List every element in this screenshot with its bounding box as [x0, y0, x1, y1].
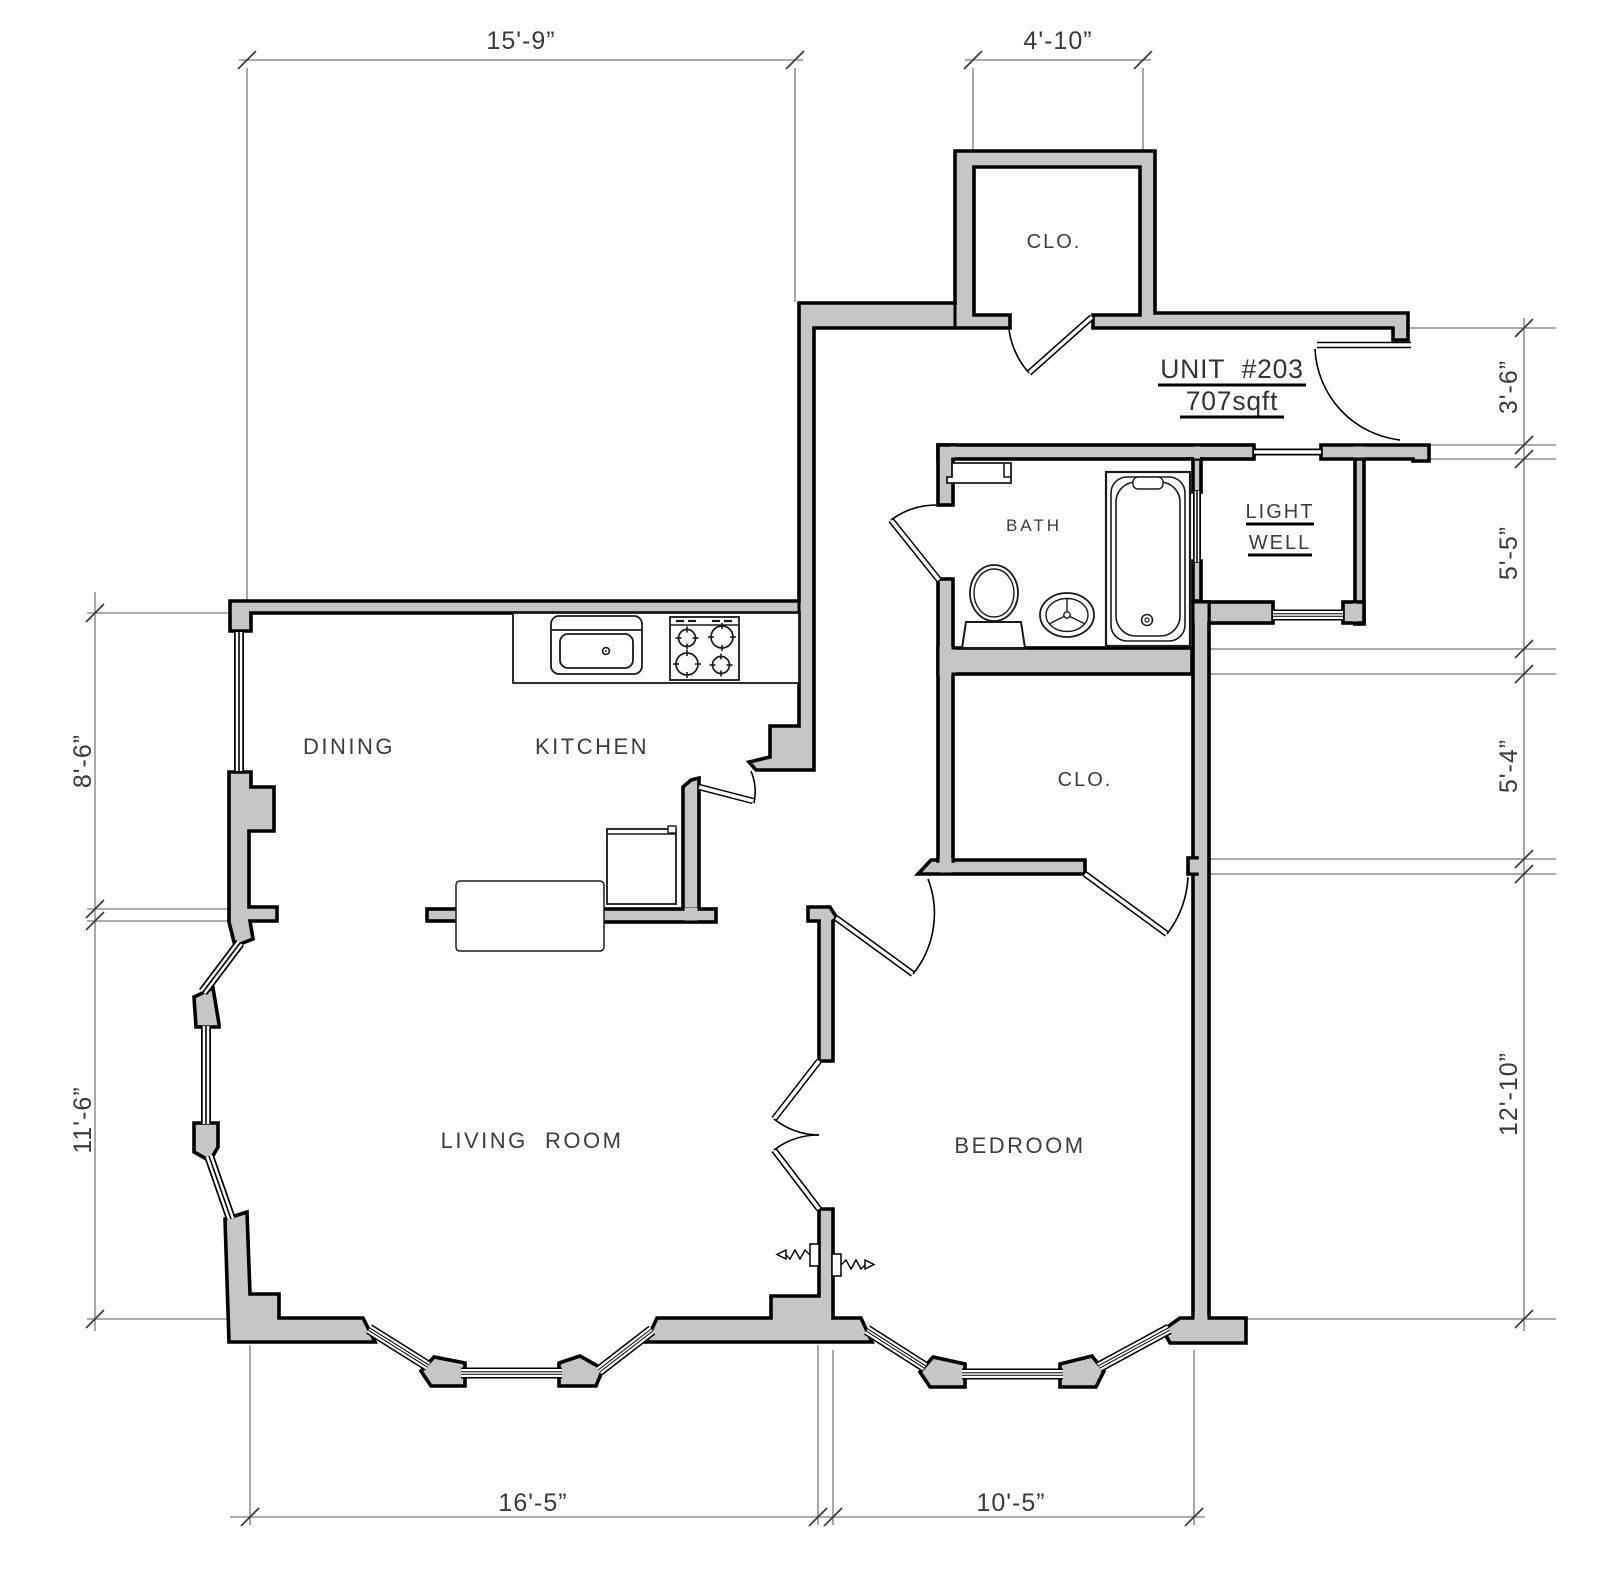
svg-text:8'-6”: 8'-6”: [69, 734, 97, 788]
svg-text:3'-6”: 3'-6”: [1495, 360, 1523, 414]
svg-text:12'-10”: 12'-10”: [1495, 1052, 1523, 1136]
svg-text:LIVING ROOM: LIVING ROOM: [441, 1128, 624, 1153]
svg-text:CLO.: CLO.: [1027, 231, 1082, 253]
svg-text:16'-5”: 16'-5”: [498, 1489, 567, 1517]
svg-text:15'-9”: 15'-9”: [486, 27, 555, 55]
svg-text:11'-6”: 11'-6”: [69, 1086, 97, 1153]
svg-text:4'-10”: 4'-10”: [1023, 27, 1092, 55]
svg-text:BATH: BATH: [1006, 516, 1062, 535]
svg-text:WELL: WELL: [1249, 532, 1311, 554]
svg-text:707sqft: 707sqft: [1186, 386, 1279, 416]
svg-text:KITCHEN: KITCHEN: [535, 734, 649, 759]
svg-text:DINING: DINING: [303, 734, 395, 759]
svg-text:UNIT #203: UNIT #203: [1160, 354, 1304, 384]
svg-text:5'-5”: 5'-5”: [1495, 526, 1523, 580]
svg-text:BEDROOM: BEDROOM: [954, 1133, 1085, 1158]
svg-text:CLO.: CLO.: [1058, 769, 1113, 791]
svg-text:LIGHT: LIGHT: [1246, 501, 1315, 523]
svg-text:10'-5”: 10'-5”: [976, 1489, 1045, 1517]
svg-text:5'-4”: 5'-4”: [1495, 739, 1523, 793]
